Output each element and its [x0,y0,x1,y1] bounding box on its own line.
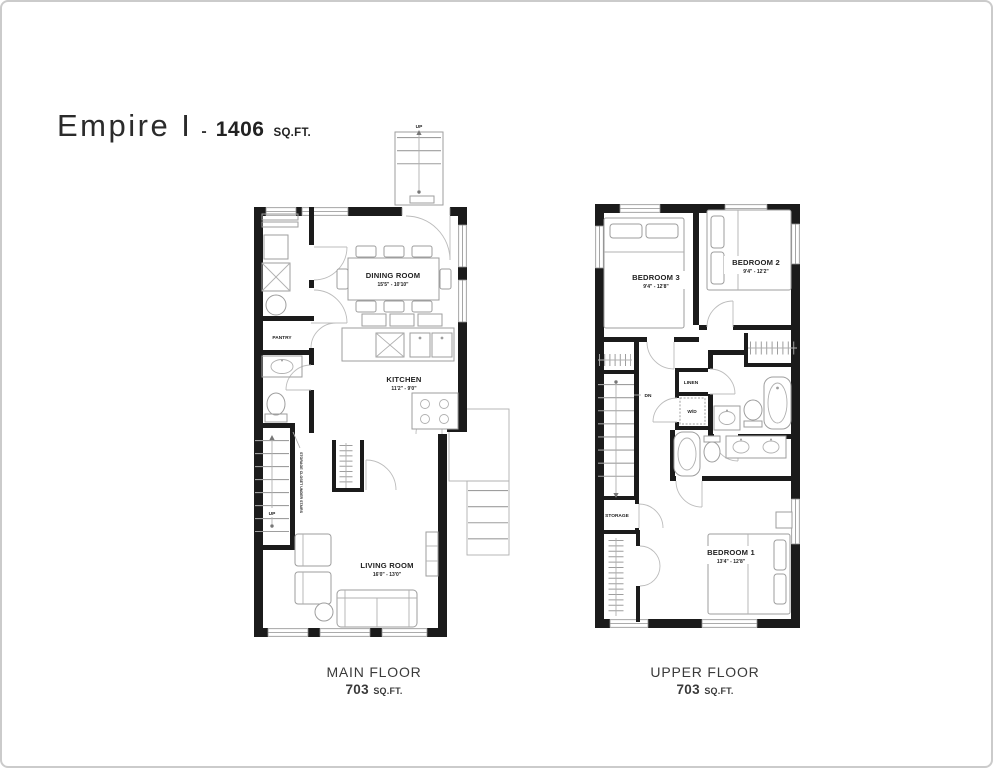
interior-stairs-up-label: UP [269,511,276,517]
bathtub [764,377,791,429]
living-room-furniture [295,532,438,627]
title-separator: - [201,123,206,141]
bedroom1-label: BEDROOM 1 [707,548,755,557]
upper-floor-area-unit: SQ.FT. [704,686,733,696]
storage-label: STORAGE [605,513,629,519]
bedroom2-label: BEDROOM 2 [732,258,780,267]
window [702,619,757,628]
upper-floor-plan: BEDROOM 3 9'4" - 12'8" BEDROOM 2 9'4" - … [590,194,814,638]
floorplan-sheet: Empire I - 1406 SQ.FT. UP [0,0,993,768]
armchair [295,572,331,604]
door-arc [640,546,660,586]
kitchen-dims: 11'2" - 9'0" [391,386,417,392]
toilet [265,393,287,422]
chair [384,246,404,257]
storage-under-stairs-label: STORAGE CLOSET UNDER STAIRS [299,452,303,514]
main-bath [714,377,791,430]
sink-vanity [714,406,740,430]
chair [412,301,432,312]
window [266,207,296,216]
main-floor-area: 703 [345,682,368,697]
pillow [711,216,724,248]
armchair [295,534,331,566]
ensuite-bath [674,432,786,476]
kitchen-island [342,314,454,361]
bedroom2-dims: 9'4" - 12'2" [743,269,769,275]
window [458,225,467,267]
front-stairs-up-label: UP [416,124,423,130]
chair [337,269,348,289]
kitchen-label: KITCHEN [386,375,421,384]
upper-floor-area: 703 [676,682,699,697]
upper-floor-caption-title: UPPER FLOOR [615,664,795,680]
main-floor-caption-title: MAIN FLOOR [284,664,464,680]
nightstand [776,512,792,528]
appliance [264,235,288,259]
hot-water-tank [262,263,290,291]
window [595,226,604,268]
dining-room-dims: 15'5" - 10'10" [377,282,409,288]
chair [356,301,376,312]
upper-floor-caption: UPPER FLOOR 703 SQ.FT. [615,664,795,699]
toilet [704,436,720,462]
stool [390,314,414,326]
door-arc [710,369,735,394]
chair [356,246,376,257]
door-arc [314,290,347,323]
living-room-dims: 16'0" - 13'0" [373,572,402,578]
main-floor-plan: UP [252,120,518,642]
chair [440,269,451,289]
door-arc [639,504,663,528]
window [302,207,348,216]
dining-room-label: DINING ROOM [366,271,421,280]
window [320,628,370,637]
bedroom1-dims: 13'4" - 12'8" [717,559,746,565]
range-counter [412,393,458,429]
door-arc [647,342,674,369]
window [268,628,308,637]
pillow [610,224,642,238]
bedroom2-bed [707,210,791,290]
door-arc [676,481,702,507]
utility-fixtures [262,214,298,315]
shelf [262,222,298,227]
bedroom3-label: BEDROOM 3 [632,273,680,282]
pillow [774,540,786,570]
laundry-label: W/D [687,409,697,415]
stairs-dn-label: DN [645,393,652,399]
chair [384,301,404,312]
window [610,619,648,628]
side-table [315,603,333,621]
chair [412,246,432,257]
door-arc [707,301,733,327]
sofa [337,590,417,627]
door-arc [653,398,677,422]
pantry-label: PANTRY [272,335,292,341]
stool [418,314,442,326]
window [620,204,660,213]
pillow [774,574,786,604]
main-floor-caption: MAIN FLOOR 703 SQ.FT. [284,664,464,699]
double-vanity [726,436,786,458]
tv-unit [426,532,438,576]
window [382,628,427,637]
furnace [266,295,286,315]
main-floor-area-unit: SQ.FT. [373,686,402,696]
pillow [646,224,678,238]
door-arc [366,460,396,490]
door-arc [311,323,336,348]
window [791,224,800,264]
sink-vanity [262,356,302,377]
powder-room [262,356,302,422]
bedroom3-dims: 9'4" - 12'8" [643,284,669,290]
stool [362,314,386,326]
model-name: Empire I [57,108,192,144]
bathtub [674,432,700,476]
window [458,280,467,322]
front-entry-stairs [395,130,443,205]
pillow [711,252,724,284]
linen-label: LINEN [684,380,699,386]
toilet [744,400,762,427]
living-room-label: LIVING ROOM [360,561,413,570]
